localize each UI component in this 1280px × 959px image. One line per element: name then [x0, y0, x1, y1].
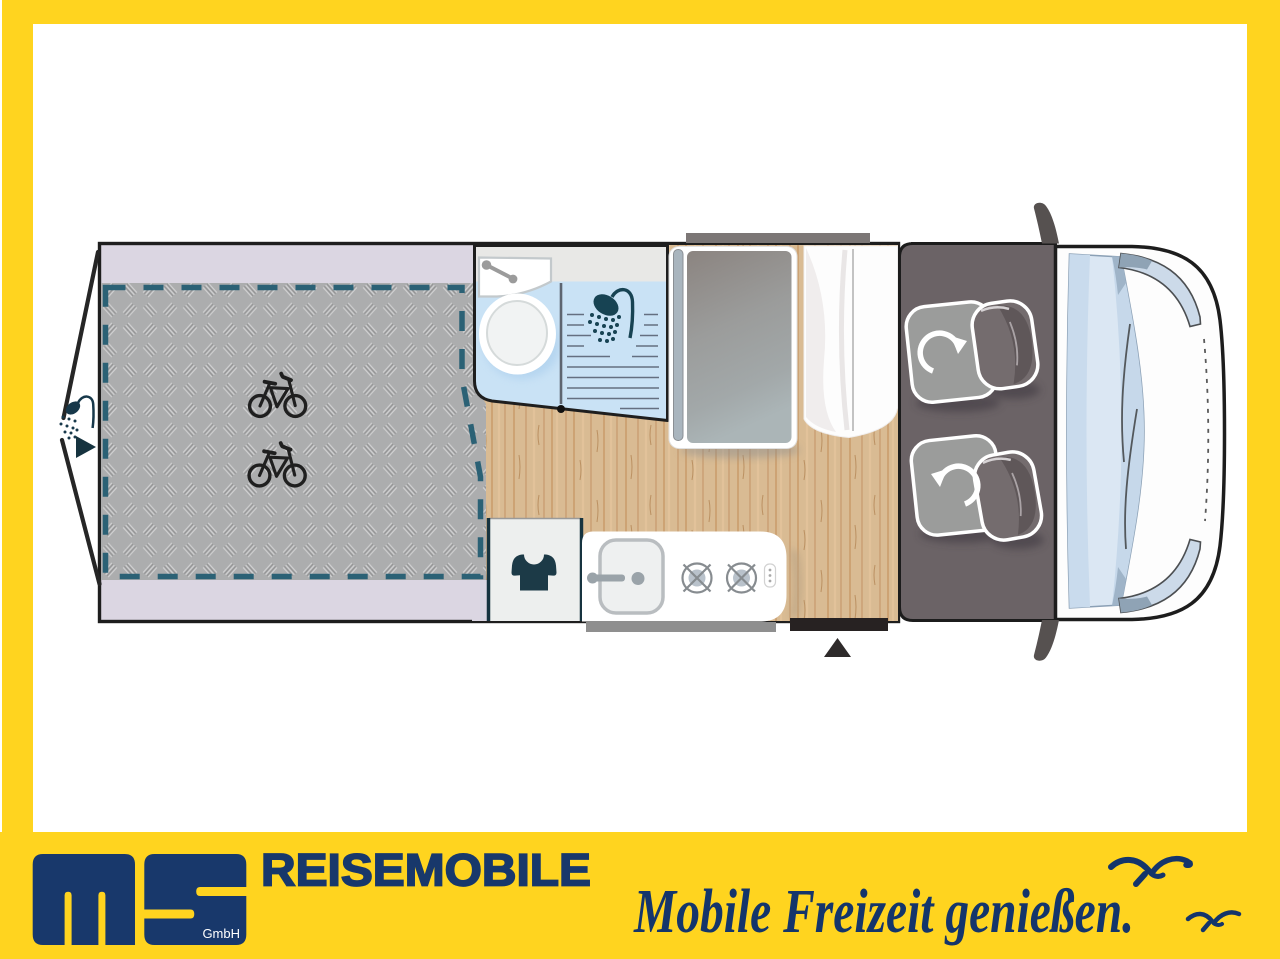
svg-text:REISEMOBILE: REISEMOBILE	[261, 845, 591, 896]
svg-text:GmbH: GmbH	[202, 926, 240, 941]
svg-text:Mobile Freizeit genießen.: Mobile Freizeit genießen.	[633, 878, 1134, 946]
